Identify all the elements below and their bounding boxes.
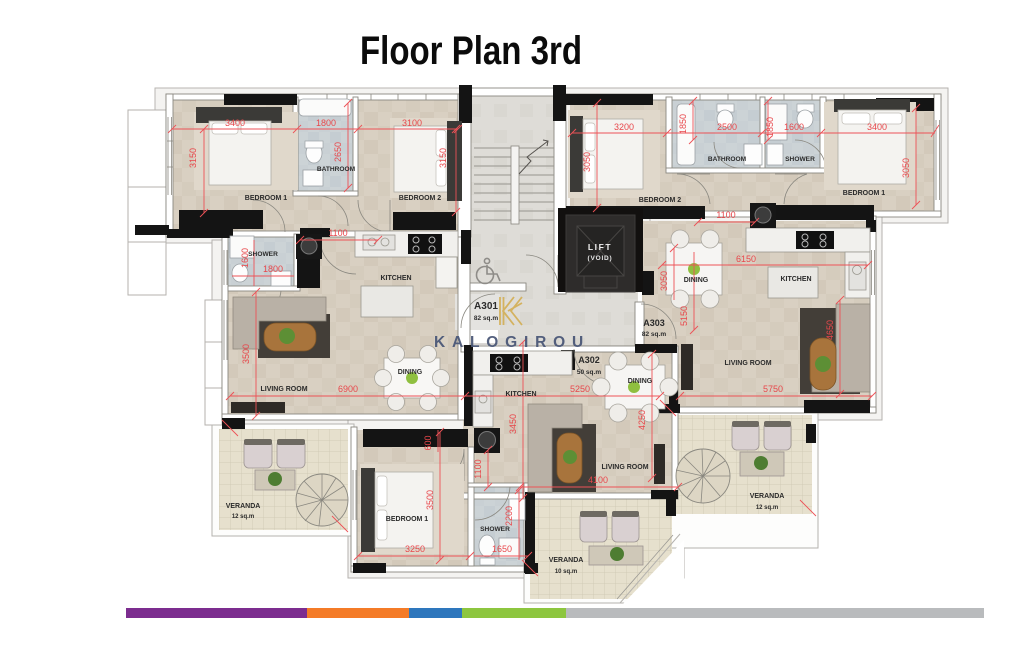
svg-text:3450: 3450 xyxy=(508,414,518,434)
svg-text:BEDROOM 1: BEDROOM 1 xyxy=(843,190,886,197)
svg-text:DINING: DINING xyxy=(628,378,653,385)
svg-text:1650: 1650 xyxy=(492,544,512,554)
svg-text:3100: 3100 xyxy=(402,118,422,128)
svg-text:4100: 4100 xyxy=(588,475,608,485)
svg-text:3150: 3150 xyxy=(438,148,448,168)
svg-text:2500: 2500 xyxy=(717,122,737,132)
svg-text:12 sq.m: 12 sq.m xyxy=(232,514,254,520)
svg-text:10 sq.m: 10 sq.m xyxy=(555,569,577,575)
svg-text:6900: 6900 xyxy=(338,384,358,394)
svg-text:1800: 1800 xyxy=(316,118,336,128)
svg-text:12 sq.m: 12 sq.m xyxy=(756,505,778,511)
svg-text:3400: 3400 xyxy=(225,118,245,128)
svg-text:Floor Plan 3rd: Floor Plan 3rd xyxy=(360,29,582,73)
svg-text:BATHROOM: BATHROOM xyxy=(708,156,747,163)
svg-text:3050: 3050 xyxy=(659,271,669,291)
svg-text:VERANDA: VERANDA xyxy=(226,503,261,510)
svg-text:VERANDA: VERANDA xyxy=(549,557,584,564)
svg-text:1100: 1100 xyxy=(328,228,347,238)
svg-text:82 sq.m: 82 sq.m xyxy=(474,315,498,322)
svg-text:BEDROOM 2: BEDROOM 2 xyxy=(639,197,682,204)
svg-text:3500: 3500 xyxy=(241,344,251,364)
svg-text:1850: 1850 xyxy=(765,117,775,137)
svg-text:50 sq.m: 50 sq.m xyxy=(577,369,601,376)
svg-text:1850: 1850 xyxy=(678,114,688,134)
svg-text:KITCHEN: KITCHEN xyxy=(505,391,536,398)
svg-text:BEDROOM 1: BEDROOM 1 xyxy=(245,195,288,202)
svg-text:(VOID): (VOID) xyxy=(587,255,612,262)
svg-text:SHOWER: SHOWER xyxy=(480,526,510,533)
svg-text:A303: A303 xyxy=(643,318,665,328)
svg-text:SHOWER: SHOWER xyxy=(248,251,278,258)
svg-text:1600: 1600 xyxy=(784,122,804,132)
svg-text:VERANDA: VERANDA xyxy=(750,493,785,500)
svg-text:3500: 3500 xyxy=(425,490,435,510)
svg-text:1100: 1100 xyxy=(473,459,483,478)
svg-text:2650: 2650 xyxy=(333,142,343,162)
svg-text:BATHROOM: BATHROOM xyxy=(317,166,356,173)
svg-text:KITCHEN: KITCHEN xyxy=(380,275,411,282)
svg-text:1100: 1100 xyxy=(716,210,735,220)
svg-text:A301: A301 xyxy=(474,301,498,312)
svg-text:3200: 3200 xyxy=(614,122,634,132)
svg-text:DINING: DINING xyxy=(684,277,709,284)
svg-text:3400: 3400 xyxy=(867,122,887,132)
svg-text:4250: 4250 xyxy=(637,410,647,430)
svg-text:LIVING ROOM: LIVING ROOM xyxy=(601,464,648,471)
svg-text:KALOGIROU: KALOGIROU xyxy=(434,334,590,351)
svg-text:LIVING ROOM: LIVING ROOM xyxy=(724,360,771,367)
svg-text:BEDROOM 2: BEDROOM 2 xyxy=(399,195,442,202)
svg-text:SHOWER: SHOWER xyxy=(785,156,815,163)
svg-text:2200: 2200 xyxy=(504,506,514,526)
svg-text:BEDROOM 1: BEDROOM 1 xyxy=(386,516,429,523)
svg-text:5250: 5250 xyxy=(570,384,590,394)
svg-text:3250: 3250 xyxy=(405,544,425,554)
svg-text:5150: 5150 xyxy=(679,306,689,326)
svg-text:3050: 3050 xyxy=(582,152,592,172)
svg-text:3050: 3050 xyxy=(901,158,911,178)
svg-text:KITCHEN: KITCHEN xyxy=(780,276,811,283)
svg-text:5750: 5750 xyxy=(763,384,783,394)
svg-text:1800: 1800 xyxy=(263,264,283,274)
svg-text:3150: 3150 xyxy=(188,148,198,168)
svg-text:6150: 6150 xyxy=(736,254,756,264)
svg-text:DINING: DINING xyxy=(398,369,423,376)
svg-text:82 sq.m: 82 sq.m xyxy=(642,331,666,338)
svg-text:LIFT: LIFT xyxy=(588,242,612,252)
svg-text:4650: 4650 xyxy=(825,320,835,340)
svg-text:A302: A302 xyxy=(578,355,600,365)
svg-text:600: 600 xyxy=(423,435,433,450)
svg-text:LIVING ROOM: LIVING ROOM xyxy=(260,386,307,393)
